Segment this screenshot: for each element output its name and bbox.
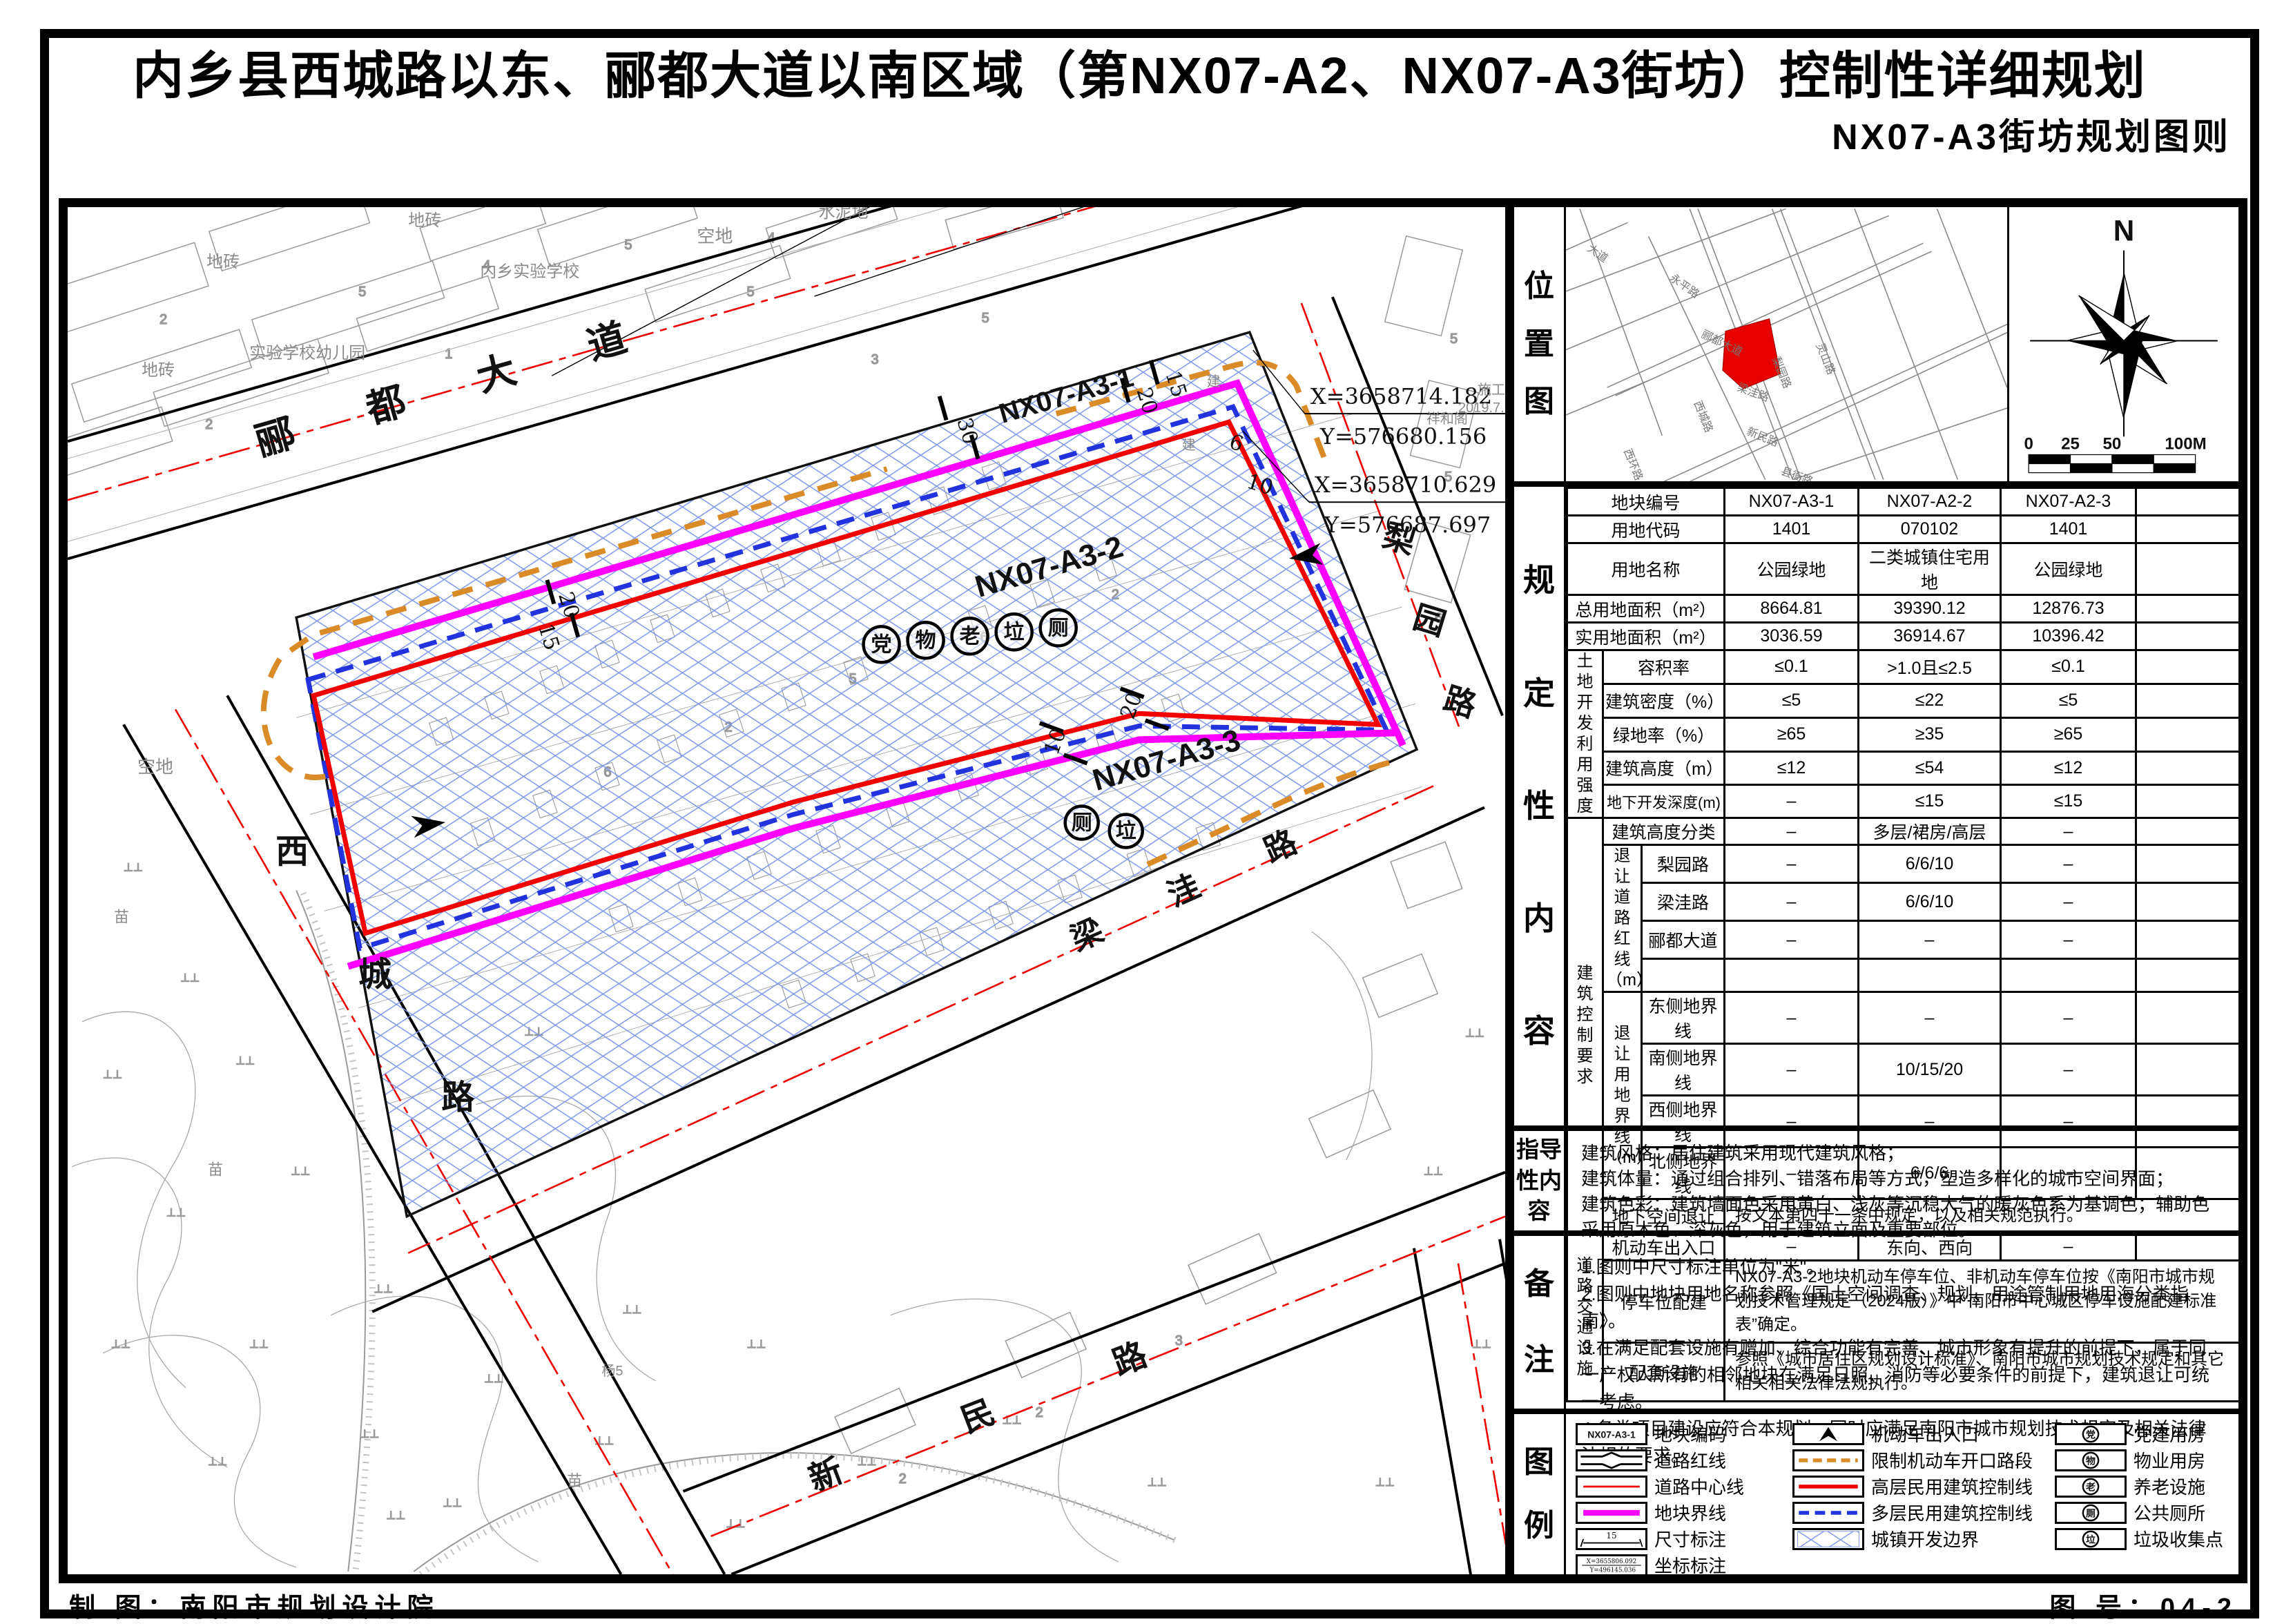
legend-item: 垃垃圾收集点 [2055, 1526, 2223, 1551]
table-cell [2136, 959, 2240, 992]
guidance-line: 建筑体量：通过组合排列、错落布局等方式，塑造多样化的城市空间界面； [1581, 1166, 2223, 1192]
building-number: 2 [205, 417, 213, 432]
table-cell [2136, 543, 2240, 595]
grass-symbol: ⊥⊥ [208, 1456, 227, 1468]
legend-label: 坐标标注 [1654, 1552, 1726, 1578]
dev-boundary-icon [1797, 1531, 1859, 1546]
grass-symbol: ⊥⊥ [1003, 1415, 1022, 1427]
road-name-char: 城 [358, 957, 391, 994]
grass-symbol: ⊥⊥ [180, 973, 200, 985]
table-cell: ≥35 [1859, 717, 2001, 751]
page-subtitle: NX07-A3街坊规划图则 [1832, 108, 2231, 159]
grass-symbol: ⊥⊥ [443, 1498, 462, 1509]
table-cell: NX07-A2-2 [1859, 488, 2001, 516]
legend-symbol [1576, 1502, 1647, 1524]
grass-symbol: ⊥⊥ [235, 1056, 255, 1067]
location-minimap: 大道永平路郦都大道梨园路灵山路梁洼路西城路新民路西环路县衙路 [1566, 207, 2009, 481]
table-cell [2001, 959, 2136, 992]
legend-label: 机动车出入口 [1871, 1421, 1979, 1447]
table-cell: 总用地面积（m²） [1567, 595, 1725, 623]
grass-symbol: ⊥⊥ [1375, 1477, 1395, 1489]
table-cell: 1401 [2001, 516, 2136, 543]
road-name-char: 民 [956, 1393, 1000, 1440]
table-cell: 梁洼路 [1642, 883, 1725, 921]
facility-char: 垃 [1116, 819, 1136, 842]
legend-symbol [1792, 1528, 1864, 1550]
legend-symbol: 15 [1576, 1528, 1647, 1550]
minimap-street-label: 西环路 [1621, 447, 1645, 481]
table-cell: 1401 [1725, 516, 1859, 543]
basemap-label: 苗 [567, 1472, 582, 1489]
scale-bar: 02550100M [2024, 434, 2206, 472]
table-cell: 地下开发深度(m) [1603, 785, 1725, 818]
facility-char: 物 [916, 629, 936, 652]
legend-label: 限制机动车开口路段 [1871, 1447, 2033, 1473]
legend-symbol [1792, 1502, 1864, 1524]
table-cell [2136, 818, 2240, 845]
legend-label: 党建用房 [2134, 1421, 2205, 1447]
facility-char: 厕 [1048, 617, 1069, 639]
drafting-credit: 制 图：南阳市规划设计院 [69, 1586, 440, 1624]
grass-symbol: ⊥⊥ [249, 1339, 269, 1351]
legend-item: 高层民用建筑控制线 [1792, 1473, 2033, 1499]
table-cell [2136, 488, 2240, 516]
section-location-label: 位置图 [1514, 207, 1566, 481]
table-cell: 公园绿地 [1725, 543, 1859, 595]
basemap-label: 空地 [523, 207, 559, 209]
building-number: 5 [358, 284, 366, 300]
site-plot [264, 332, 1417, 1217]
legend-column-1: NX07-A3-1地块编码道路红线道路中心线地块界线15尺寸标注X=365580… [1576, 1421, 1744, 1578]
table-cell [2136, 717, 2240, 751]
scale-tick: 100M [2165, 434, 2206, 453]
table-cell: ≤0.1 [1725, 650, 1859, 684]
building-number: 5 [624, 238, 632, 253]
legend-label: 城镇开发边界 [1871, 1526, 1979, 1551]
section-notes-label: 备注 [1514, 1236, 1566, 1409]
legend-item: 城镇开发边界 [1792, 1526, 2033, 1551]
table-cell [2136, 650, 2240, 684]
road-name-char: 路 [1108, 1336, 1153, 1382]
block-code-sample: NX07-A3-1 [1587, 1429, 1636, 1440]
legend-symbol: 物 [2055, 1449, 2127, 1471]
section-location: 位置图 大道永平路郦都大道梨园路灵山路梁洼路西城路新民路西环路县衙路 N0255… [1514, 207, 2238, 481]
table-cell [2136, 595, 2240, 623]
table-cell: 绿地率（%） [1603, 717, 1725, 751]
facility-char: 老 [960, 625, 980, 648]
minimap-street-label: 灵山路 [1814, 341, 1838, 376]
table-cell: 建筑密度（%） [1603, 684, 1725, 717]
building-number: 5 [1450, 331, 1458, 347]
table-cell: ≤5 [2001, 684, 2136, 717]
table-cell: – [1725, 883, 1859, 921]
table-cell: 39390.12 [1859, 595, 2001, 623]
table-cell [1859, 959, 2001, 992]
legend-item: 党党建用房 [2055, 1421, 2223, 1447]
grass-symbol: ⊥⊥ [360, 1429, 379, 1440]
basemap-label: 内乡实验学校 [480, 262, 579, 281]
table-cell: ≤12 [1725, 751, 1859, 785]
content-frame: ⊥⊥⊥⊥⊥⊥⊥⊥⊥⊥⊥⊥⊥⊥⊥⊥⊥⊥⊥⊥⊥⊥⊥⊥⊥⊥⊥⊥⊥⊥⊥⊥⊥⊥⊥⊥⊥⊥⊥⊥… [59, 198, 2247, 1583]
legend-item: 物物业用房 [2055, 1447, 2223, 1473]
table-cell: ≤12 [2001, 751, 2136, 785]
road-name-char: 路 [1440, 680, 1481, 724]
section-regulatory: 规定性内容 地块编号NX07-A3-1NX07-A2-2NX07-A2-3用地代… [1514, 487, 2238, 1125]
panel-divider [1505, 207, 1514, 1574]
divider [1514, 481, 2238, 487]
basemap-label: 2019.7.18 [1458, 400, 1505, 416]
dimension-tick [940, 396, 947, 420]
table-cell: – [2001, 921, 2136, 959]
legend-label: 高层民用建筑控制线 [1871, 1473, 2033, 1499]
grass-symbol: ⊥⊥ [111, 1339, 130, 1351]
legend-symbol: 党 [2055, 1423, 2127, 1445]
section-notes: 备注 1.图则中尺寸标注单位为"米"。2.图则中地块用地名称参照《国土空间调查、… [1514, 1236, 2238, 1409]
basemap-label: 水泥地 [819, 207, 869, 222]
legend-symbol: X=3655806.092Y=496145.036 [1576, 1554, 1647, 1576]
table-cell: – [2001, 818, 2136, 845]
table-cell: 公园绿地 [2001, 543, 2136, 595]
table-cell: – [1859, 992, 2001, 1044]
divider [1514, 1125, 2238, 1131]
building-number: 5 [746, 284, 754, 300]
legend-label: 养老设施 [2134, 1473, 2205, 1499]
table-cell: ≤22 [1859, 684, 2001, 717]
legend-symbol: 垃 [2055, 1528, 2127, 1550]
basemap-label: 苗 [114, 909, 129, 926]
grass-symbol: ⊥⊥ [1424, 1166, 1443, 1178]
minimap-streets [1566, 209, 2007, 481]
table-cell: 实用地面积（m²） [1567, 623, 1725, 650]
table-cell [2136, 1044, 2240, 1096]
legend-label: 物业用房 [2134, 1447, 2205, 1473]
map-label: 物 [2086, 1455, 2096, 1466]
table-cell: ≤0.1 [2001, 650, 2136, 684]
grass-symbol: ⊥⊥ [746, 1339, 766, 1351]
building-number: 5 [982, 311, 989, 326]
road-name-char: 郦 [251, 411, 300, 463]
legend-column-3: 党党建用房物物业用房老养老设施厕公共厕所垃垃圾收集点 [2055, 1421, 2223, 1552]
table-cell: 退让道路红线（m） [1603, 845, 1642, 992]
basemap-label: 地砖 [206, 253, 240, 271]
table-cell: 东侧地界线 [1642, 992, 1725, 1044]
table-cell: >1.0且≤2.5 [1859, 650, 2001, 684]
table-cell [2136, 684, 2240, 717]
table-cell: – [1725, 921, 1859, 959]
table-cell: 10/15/20 [1859, 1044, 2001, 1096]
main-map: ⊥⊥⊥⊥⊥⊥⊥⊥⊥⊥⊥⊥⊥⊥⊥⊥⊥⊥⊥⊥⊥⊥⊥⊥⊥⊥⊥⊥⊥⊥⊥⊥⊥⊥⊥⊥⊥⊥⊥⊥… [68, 207, 1505, 1574]
basemap-label: 施工区 [1478, 382, 1505, 398]
table-cell: 建筑高度（m） [1603, 751, 1725, 785]
section-regulatory-label: 规定性内容 [1514, 487, 1566, 1125]
note-line: 3.在满足配套设施有赠加、综合功能有完善、城市形象有提升的前提下，属于同一产权人… [1581, 1335, 2223, 1415]
basemap-label: 地砖 [142, 361, 175, 380]
table-cell: 6/6/10 [1859, 883, 2001, 921]
note-line: 2.图则中地块用地名称参照《国土空间调查、规划、用途管制用地用海分类指南》。 [1581, 1281, 2223, 1335]
scale-tick: 0 [2024, 434, 2033, 453]
map-label: 老 [2086, 1481, 2096, 1492]
table-cell [2136, 751, 2240, 785]
basemap-label: 建 [1182, 437, 1196, 453]
legend-symbol [1576, 1476, 1647, 1498]
vehicle-entrance-icon [1819, 1427, 1837, 1440]
table-cell: – [1725, 785, 1859, 818]
table-cell: 梨园路 [1642, 845, 1725, 883]
coordinate-y: Y=576687.697 [1324, 512, 1491, 538]
table-cell: ≤5 [1725, 684, 1859, 717]
coord-sample-x: X=3655806.092 [1587, 1558, 1637, 1565]
table-cell: 3036.59 [1725, 623, 1859, 650]
legend-label: 垃圾收集点 [2134, 1526, 2223, 1551]
table-cell [2136, 516, 2240, 543]
map-label: 15 [1606, 1531, 1616, 1540]
legend-item: 厕公共厕所 [2055, 1500, 2223, 1525]
legend-symbol: 老 [2055, 1476, 2127, 1498]
table-cell: ≤15 [2001, 785, 2136, 818]
basemap-label: 实验学校幼儿园 [249, 344, 365, 362]
minimap-street-label: 新民路 [1745, 425, 1780, 449]
grass-symbol: ⊥⊥ [166, 1208, 186, 1219]
grass-symbol: ⊥⊥ [1148, 1477, 1167, 1489]
map-label: 党 [2086, 1429, 2096, 1440]
grass-symbol: ⊥⊥ [124, 862, 143, 873]
table-cell: 容积率 [1603, 650, 1725, 684]
guidance-text: 建筑风格：居住建筑采用现代建筑风格；建筑体量：通过组合排列、错落布局等方式，塑造… [1566, 1131, 2238, 1243]
building-number: 3 [871, 352, 879, 367]
legend-item: 多层民用建筑控制线 [1792, 1500, 2033, 1525]
compass-panel: N02550100M [2009, 207, 2238, 481]
map-label: 厕 [2086, 1507, 2096, 1518]
road-centerline [1458, 1264, 1505, 1574]
road-name-char: 都 [360, 379, 410, 432]
legend-symbol [1792, 1476, 1864, 1498]
table-cell: – [2001, 883, 2136, 921]
table-cell [2136, 785, 2240, 818]
legend-label: 尺寸标注 [1654, 1526, 1726, 1551]
coordinate-x: X=3658710.629 [1315, 472, 1496, 498]
facility-char: 垃 [1004, 620, 1025, 644]
table-cell: 070102 [1859, 516, 2001, 543]
legend-item: NX07-A3-1地块编码 [1576, 1421, 1744, 1447]
table-cell: 36914.67 [1859, 623, 2001, 650]
coord-sample-y: Y=496145.036 [1589, 1567, 1636, 1574]
table-cell [2136, 845, 2240, 883]
legend-symbol: 厕 [2055, 1502, 2127, 1524]
table-cell: 用地代码 [1567, 516, 1725, 543]
legend-label: 地块界线 [1654, 1500, 1726, 1525]
section-legend-label: 图例 [1514, 1414, 1566, 1574]
table-cell: ≤54 [1859, 751, 2001, 785]
table-cell: – [1859, 921, 2001, 959]
scale-tick: 25 [2061, 434, 2080, 453]
north-label: N [2113, 215, 2135, 247]
table-cell: ≥65 [2001, 717, 2136, 751]
road-name-char: 路 [441, 1080, 475, 1116]
legend-item: 道路红线 [1576, 1447, 1744, 1473]
guidance-line: 建筑风格：居住建筑采用现代建筑风格； [1581, 1141, 2223, 1166]
building-number: 2 [1036, 1405, 1043, 1420]
table-cell: 12876.73 [2001, 595, 2136, 623]
table-cell [2136, 921, 2240, 959]
grass-symbol: ⊥⊥ [858, 1456, 877, 1468]
sheet-number: 图 号：04-2 [2049, 1586, 2238, 1624]
table-cell: – [2001, 845, 2136, 883]
table-cell: 用地名称 [1567, 543, 1725, 595]
page-title: 内乡县西城路以东、郦都大道以南区域（第NX07-A2、NX07-A3街坊）控制性… [69, 35, 2210, 108]
section-legend: 图例 NX07-A3-1地块编码道路红线道路中心线地块界线15尺寸标注X=365… [1514, 1414, 2238, 1574]
legend-label: 道路中心线 [1654, 1473, 1744, 1499]
road-name-char: 道 [582, 316, 631, 368]
map-label: 垃 [2086, 1534, 2096, 1545]
grass-symbol: ⊥⊥ [1472, 1339, 1491, 1351]
legend-symbol: NX07-A3-1 [1576, 1423, 1647, 1445]
legend-column-2: 机动车出入口限制机动车开口路段高层民用建筑控制线多层民用建筑控制线城镇开发边界 [1792, 1421, 2033, 1552]
basemap-label: 建 [1207, 374, 1221, 389]
grass-symbol: ⊥⊥ [103, 1070, 122, 1081]
basemap-label: 苗 [208, 1161, 223, 1179]
minimap-street-label: 大道 [1585, 242, 1610, 265]
legend-symbol [1576, 1449, 1647, 1471]
table-cell: ≤15 [1859, 785, 2001, 818]
road-name-char: 园 [1409, 599, 1450, 642]
table-cell: 郦都大道 [1642, 921, 1725, 959]
table-cell: 地块编号 [1567, 488, 1725, 516]
facility-char: 党 [871, 633, 892, 656]
road-name-char: 新 [804, 1453, 848, 1499]
divider [1514, 1409, 2238, 1414]
table-cell: – [1725, 992, 1859, 1044]
facility-char: 厕 [1072, 811, 1092, 834]
building-number: 2 [159, 312, 167, 327]
road-name-char: 大 [472, 347, 521, 400]
legend-item: 机动车出入口 [1792, 1421, 2033, 1447]
table-cell: 土地开发利用强度 [1567, 650, 1603, 818]
table-cell [2136, 883, 2240, 921]
legend-item: 道路中心线 [1576, 1473, 1744, 1499]
table-cell: 6/6/10 [1859, 845, 2001, 883]
road-redline-icon [1580, 1452, 1642, 1467]
table-cell: – [2001, 992, 2136, 1044]
scale-tick: 50 [2102, 434, 2121, 453]
table-cell: 8664.81 [1725, 595, 1859, 623]
table-cell: – [2001, 1044, 2136, 1096]
table-cell: 10396.42 [2001, 623, 2136, 650]
grass-symbol: ⊥⊥ [594, 1435, 614, 1447]
table-cell: 南侧地界线 [1642, 1044, 1725, 1096]
table-cell [2136, 992, 2240, 1044]
table-cell: – [1725, 845, 1859, 883]
building-number: 2 [899, 1471, 907, 1487]
legend-label: 道路红线 [1654, 1447, 1726, 1473]
table-cell: 多层/裙房/高层 [1859, 818, 2001, 845]
table-cell: 建筑高度分类 [1603, 818, 1725, 845]
minimap-street-label: 县衙路 [1779, 465, 1815, 481]
table-cell: – [1725, 818, 1859, 845]
grass-symbol: ⊥⊥ [374, 1284, 393, 1295]
table-cell: ≥65 [1725, 717, 1859, 751]
legend-label: 地块编码 [1654, 1421, 1726, 1447]
grass-symbol: ⊥⊥ [386, 1510, 405, 1522]
legend-item: 地块界线 [1576, 1500, 1744, 1525]
legend-symbol [1792, 1423, 1864, 1445]
grass-symbol: ⊥⊥ [1465, 1028, 1484, 1040]
road-name-char: 西 [275, 833, 309, 870]
note-line: 1.图则中尺寸标注单位为"米"。 [1581, 1254, 2223, 1281]
divider [1514, 1230, 2238, 1236]
legend-item: X=3655806.092Y=496145.036坐标标注 [1576, 1552, 1744, 1578]
basemap-label: 空地 [137, 756, 173, 777]
coordinate-y: Y=576680.156 [1319, 423, 1487, 449]
basemap-label: 地砖 [408, 211, 441, 230]
legend-symbol [1792, 1449, 1864, 1471]
section-guidance-label: 指导性内容 [1514, 1131, 1566, 1230]
basemap-label: 杨5 [601, 1363, 623, 1379]
table-cell: NX07-A2-3 [2001, 488, 2136, 516]
right-panel: 位置图 大道永平路郦都大道梨园路灵山路梁洼路西城路新民路西环路县衙路 N0255… [1514, 207, 2238, 1574]
grass-symbol: ⊥⊥ [622, 1304, 641, 1316]
legend-item: 限制机动车开口路段 [1792, 1447, 2033, 1473]
main-map-svg: ⊥⊥⊥⊥⊥⊥⊥⊥⊥⊥⊥⊥⊥⊥⊥⊥⊥⊥⊥⊥⊥⊥⊥⊥⊥⊥⊥⊥⊥⊥⊥⊥⊥⊥⊥⊥⊥⊥⊥⊥… [68, 207, 1505, 1574]
table-cell [1725, 959, 1859, 992]
legend-label: 多层民用建筑控制线 [1871, 1500, 2033, 1525]
basemap-label: 空地 [697, 226, 733, 246]
grass-symbol: ⊥⊥ [291, 1166, 310, 1178]
table-cell [1642, 959, 1725, 992]
section-guidance: 指导性内容 建筑风格：居住建筑采用现代建筑风格；建筑体量：通过组合排列、错落布局… [1514, 1131, 2238, 1230]
table-cell: NX07-A3-1 [1725, 488, 1859, 516]
legend-label: 公共厕所 [2134, 1500, 2205, 1525]
legend-item: 老养老设施 [2055, 1473, 2223, 1499]
building-number: 3 [1175, 1333, 1183, 1348]
grass-symbol: ⊥⊥ [484, 1373, 503, 1385]
table-cell [2136, 623, 2240, 650]
compass-rose [2067, 273, 2178, 418]
table-cell: 二类城镇住宅用地 [1859, 543, 2001, 595]
legend-item: 15尺寸标注 [1576, 1526, 1744, 1551]
plan-sheet: 内乡县西城路以东、郦都大道以南区域（第NX07-A2、NX07-A3街坊）控制性… [0, 0, 2293, 1624]
minimap-street-label: 西城路 [1691, 399, 1715, 434]
table-cell: – [1725, 1044, 1859, 1096]
